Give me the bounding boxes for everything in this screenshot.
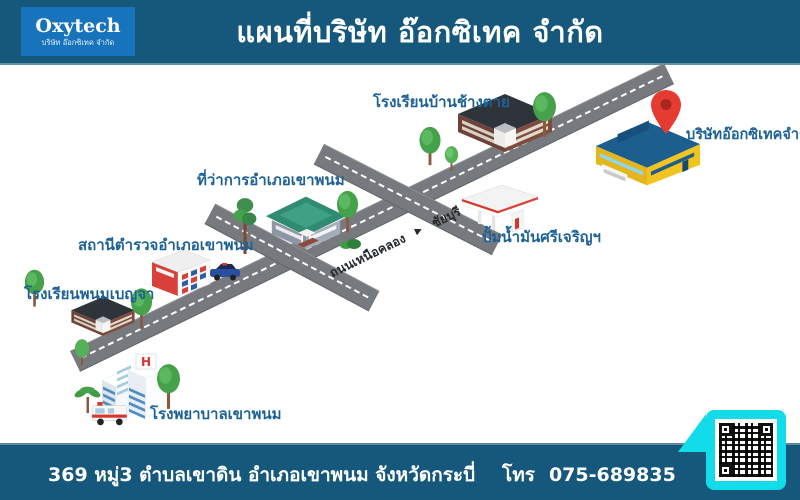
label-district-office: ที่ว่าการอำเภอเขาพนม: [197, 168, 345, 192]
location-pin-icon: [650, 90, 682, 134]
qr-finder-icon: [719, 423, 732, 436]
bush-icon: [340, 238, 362, 249]
hospital-h-sign: H: [141, 355, 151, 369]
palm-tree-icon: [74, 383, 101, 415]
phone-block: โทร075-689835: [502, 460, 676, 490]
label-police-station: สถานีตำรวจอำเภอเขาพนม: [78, 233, 254, 257]
label-school-benja: โรงเรียนพนมเบญจา: [24, 282, 154, 306]
qr-code-background: [715, 419, 777, 481]
tree-icon: [442, 145, 461, 173]
phone-number: 075-689835: [549, 464, 676, 486]
logo-subtitle: บริษัท อ๊อกซิเทค จำกัด: [42, 38, 115, 47]
qr-finder-icon: [719, 464, 732, 477]
phone-label: โทร: [502, 464, 535, 486]
label-hospital: โรงพยาบาลเขาพนม: [150, 402, 282, 426]
tree-icon: [336, 187, 359, 237]
header-bar: Oxytech บริษัท อ๊อกซิเทค จำกัด แผนที่บริ…: [0, 0, 800, 65]
qr-finder-icon: [760, 423, 773, 436]
map-poster: Oxytech บริษัท อ๊อกซิเทค จำกัด แผนที่บริ…: [0, 0, 800, 500]
company-logo: Oxytech บริษัท อ๊อกซิเทค จำกัด: [21, 7, 135, 56]
address-text: 369 หมู่3 ตำบลเขาดิน อำเภอเขาพนม จังหวัด…: [48, 460, 475, 490]
label-gas-station: ปั้มน้ำมันศรีเจริญฯ: [482, 225, 601, 249]
road-dash-line: [81, 75, 663, 358]
page-title: แผนที่บริษัท อ๊อกซิเทค จำกัด: [236, 9, 603, 55]
tree-icon: [74, 338, 90, 368]
police-car-icon: [208, 260, 242, 282]
label-school-changtai: โรงเรียนบ้านช้างตาย: [373, 90, 510, 114]
main-road: [70, 63, 674, 371]
tree-icon: [416, 125, 444, 169]
qr-code: [706, 410, 786, 490]
road-direction-arrow-icon: ▶: [414, 225, 424, 236]
label-oxytech-company: บริษัทอ๊อกซิเทคจำกัด: [686, 123, 800, 146]
map-area: ถนนเหนือคลอง ▶ ชัยบุรี: [0, 65, 800, 443]
qr-code-pattern: [719, 423, 773, 477]
tree-icon: [532, 91, 557, 139]
logo-title: Oxytech: [35, 16, 120, 36]
